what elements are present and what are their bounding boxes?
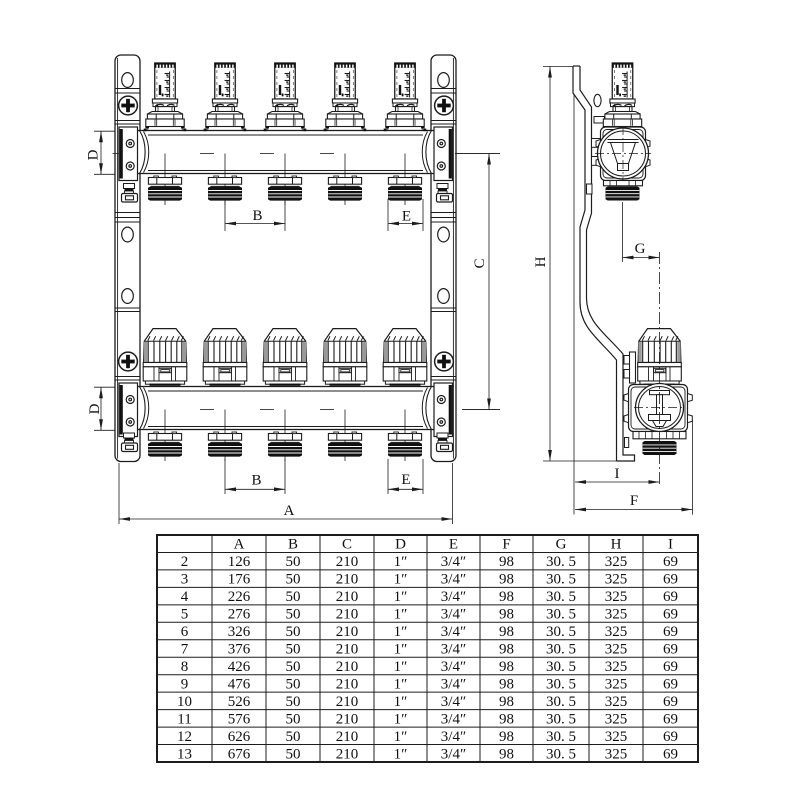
- svg-text:F: F: [630, 493, 638, 509]
- svg-text:325: 325: [605, 694, 628, 710]
- svg-text:3/4″: 3/4″: [441, 572, 466, 588]
- svg-text:210: 210: [336, 659, 359, 675]
- svg-text:1″: 1″: [394, 746, 408, 762]
- svg-text:1″: 1″: [394, 554, 408, 570]
- svg-text:30. 5: 30. 5: [546, 624, 576, 640]
- svg-text:1″: 1″: [394, 589, 408, 605]
- svg-text:B: B: [288, 537, 298, 553]
- svg-text:B: B: [251, 473, 261, 489]
- svg-text:1″: 1″: [394, 607, 408, 623]
- svg-text:1″: 1″: [394, 659, 408, 675]
- svg-text:50: 50: [286, 676, 301, 692]
- svg-text:69: 69: [663, 711, 678, 727]
- svg-text:A: A: [234, 537, 245, 553]
- svg-text:50: 50: [286, 711, 301, 727]
- svg-text:476: 476: [228, 676, 251, 692]
- svg-text:210: 210: [336, 711, 359, 727]
- svg-text:576: 576: [228, 711, 251, 727]
- svg-text:210: 210: [336, 554, 359, 570]
- svg-text:12: 12: [177, 729, 192, 745]
- svg-text:I: I: [615, 466, 620, 482]
- svg-text:98: 98: [499, 624, 514, 640]
- svg-text:3/4″: 3/4″: [441, 694, 466, 710]
- svg-text:325: 325: [605, 659, 628, 675]
- svg-text:3/4″: 3/4″: [441, 554, 466, 570]
- svg-text:D: D: [395, 537, 406, 553]
- svg-text:69: 69: [663, 607, 678, 623]
- svg-text:325: 325: [605, 554, 628, 570]
- svg-text:69: 69: [663, 746, 678, 762]
- svg-text:G: G: [556, 537, 567, 553]
- svg-text:30. 5: 30. 5: [546, 729, 576, 745]
- svg-text:325: 325: [605, 676, 628, 692]
- svg-text:98: 98: [499, 572, 514, 588]
- svg-text:210: 210: [336, 746, 359, 762]
- svg-text:50: 50: [286, 554, 301, 570]
- svg-text:13: 13: [177, 746, 192, 762]
- svg-text:526: 526: [228, 694, 251, 710]
- svg-text:1″: 1″: [394, 711, 408, 727]
- svg-text:325: 325: [605, 729, 628, 745]
- svg-text:10: 10: [177, 694, 192, 710]
- svg-text:3/4″: 3/4″: [441, 589, 466, 605]
- svg-text:C: C: [472, 258, 488, 268]
- svg-text:30. 5: 30. 5: [546, 659, 576, 675]
- svg-text:30. 5: 30. 5: [546, 589, 576, 605]
- svg-text:325: 325: [605, 589, 628, 605]
- svg-text:30. 5: 30. 5: [546, 554, 576, 570]
- svg-text:325: 325: [605, 607, 628, 623]
- svg-text:3/4″: 3/4″: [441, 676, 466, 692]
- svg-text:B: B: [252, 208, 262, 224]
- svg-text:69: 69: [663, 659, 678, 675]
- svg-text:1″: 1″: [394, 624, 408, 640]
- svg-text:30. 5: 30. 5: [546, 572, 576, 588]
- svg-text:30. 5: 30. 5: [546, 607, 576, 623]
- svg-text:50: 50: [286, 659, 301, 675]
- svg-text:4: 4: [181, 589, 189, 605]
- svg-text:50: 50: [286, 694, 301, 710]
- svg-text:98: 98: [499, 642, 514, 658]
- svg-text:210: 210: [336, 572, 359, 588]
- svg-text:C: C: [342, 537, 352, 553]
- svg-text:98: 98: [499, 694, 514, 710]
- svg-text:H: H: [533, 256, 549, 267]
- svg-text:1″: 1″: [394, 642, 408, 658]
- svg-text:3: 3: [181, 572, 189, 588]
- svg-text:126: 126: [228, 554, 251, 570]
- svg-text:50: 50: [286, 729, 301, 745]
- svg-text:3/4″: 3/4″: [441, 642, 466, 658]
- svg-text:676: 676: [228, 746, 251, 762]
- svg-text:98: 98: [499, 711, 514, 727]
- svg-text:F: F: [502, 537, 510, 553]
- svg-text:30. 5: 30. 5: [546, 694, 576, 710]
- svg-text:5: 5: [181, 607, 189, 623]
- svg-text:325: 325: [605, 746, 628, 762]
- svg-text:3/4″: 3/4″: [441, 729, 466, 745]
- svg-text:69: 69: [663, 676, 678, 692]
- svg-text:I: I: [668, 537, 673, 553]
- svg-text:1″: 1″: [394, 694, 408, 710]
- svg-text:50: 50: [286, 624, 301, 640]
- svg-text:69: 69: [663, 694, 678, 710]
- svg-text:30. 5: 30. 5: [546, 642, 576, 658]
- svg-text:50: 50: [286, 642, 301, 658]
- svg-text:98: 98: [499, 659, 514, 675]
- svg-text:E: E: [401, 472, 410, 488]
- svg-text:69: 69: [663, 624, 678, 640]
- svg-text:A: A: [284, 503, 295, 519]
- svg-text:50: 50: [286, 746, 301, 762]
- svg-text:3/4″: 3/4″: [441, 711, 466, 727]
- svg-text:1″: 1″: [394, 676, 408, 692]
- svg-text:E: E: [402, 209, 411, 225]
- svg-text:2: 2: [181, 554, 189, 570]
- svg-text:210: 210: [336, 624, 359, 640]
- svg-text:3/4″: 3/4″: [441, 624, 466, 640]
- svg-text:69: 69: [663, 729, 678, 745]
- svg-text:69: 69: [663, 589, 678, 605]
- svg-text:276: 276: [228, 607, 251, 623]
- svg-text:6: 6: [181, 624, 189, 640]
- svg-text:50: 50: [286, 589, 301, 605]
- svg-text:69: 69: [663, 642, 678, 658]
- svg-text:210: 210: [336, 694, 359, 710]
- svg-text:98: 98: [499, 607, 514, 623]
- svg-text:325: 325: [605, 624, 628, 640]
- svg-text:69: 69: [663, 572, 678, 588]
- svg-text:30. 5: 30. 5: [546, 746, 576, 762]
- svg-text:D: D: [86, 149, 102, 160]
- svg-text:30. 5: 30. 5: [546, 676, 576, 692]
- svg-text:98: 98: [499, 746, 514, 762]
- svg-text:98: 98: [499, 554, 514, 570]
- svg-text:326: 326: [228, 624, 251, 640]
- svg-text:G: G: [635, 241, 646, 257]
- svg-text:69: 69: [663, 554, 678, 570]
- svg-text:325: 325: [605, 642, 628, 658]
- svg-text:3/4″: 3/4″: [441, 659, 466, 675]
- svg-text:426: 426: [228, 659, 251, 675]
- svg-text:626: 626: [228, 729, 251, 745]
- svg-text:226: 226: [228, 589, 251, 605]
- svg-text:D: D: [87, 403, 103, 414]
- svg-text:210: 210: [336, 607, 359, 623]
- svg-text:30. 5: 30. 5: [546, 711, 576, 727]
- svg-text:E: E: [449, 537, 458, 553]
- svg-text:325: 325: [605, 572, 628, 588]
- svg-text:8: 8: [181, 659, 189, 675]
- svg-text:1″: 1″: [394, 572, 408, 588]
- svg-text:3/4″: 3/4″: [441, 746, 466, 762]
- svg-text:9: 9: [181, 676, 189, 692]
- svg-text:325: 325: [605, 711, 628, 727]
- svg-text:176: 176: [228, 572, 251, 588]
- svg-text:210: 210: [336, 642, 359, 658]
- svg-text:210: 210: [336, 676, 359, 692]
- svg-text:7: 7: [181, 642, 189, 658]
- svg-text:98: 98: [499, 589, 514, 605]
- svg-text:376: 376: [228, 642, 251, 658]
- svg-text:210: 210: [336, 589, 359, 605]
- svg-text:210: 210: [336, 729, 359, 745]
- svg-text:98: 98: [499, 729, 514, 745]
- svg-text:3/4″: 3/4″: [441, 607, 466, 623]
- svg-text:11: 11: [177, 711, 191, 727]
- svg-text:H: H: [611, 537, 622, 553]
- svg-text:50: 50: [286, 607, 301, 623]
- svg-text:1″: 1″: [394, 729, 408, 745]
- svg-text:50: 50: [286, 572, 301, 588]
- svg-text:98: 98: [499, 676, 514, 692]
